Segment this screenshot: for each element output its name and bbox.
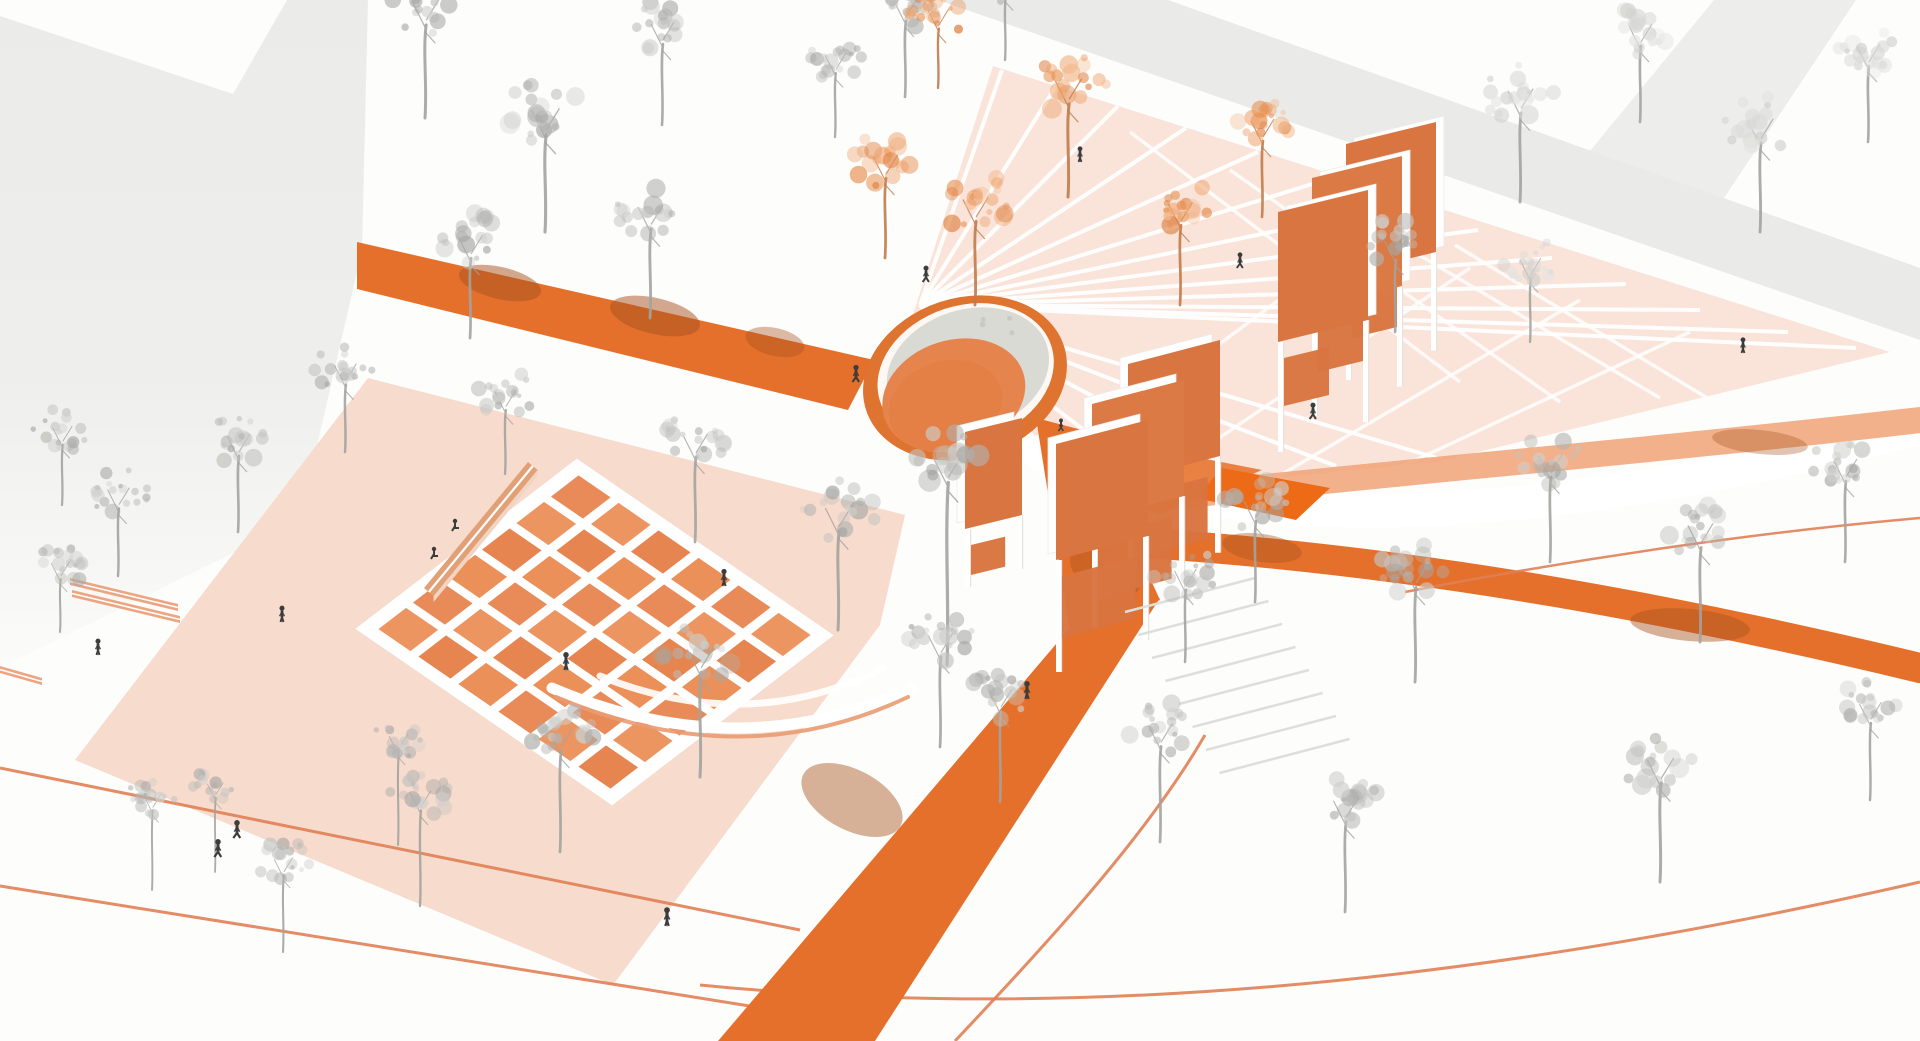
- landscape-render: [0, 0, 1920, 1041]
- gate-face: [1278, 190, 1368, 342]
- gate-face: [1056, 420, 1148, 560]
- gate-face: [965, 418, 1022, 529]
- axonometric-scene: [0, 0, 1920, 1041]
